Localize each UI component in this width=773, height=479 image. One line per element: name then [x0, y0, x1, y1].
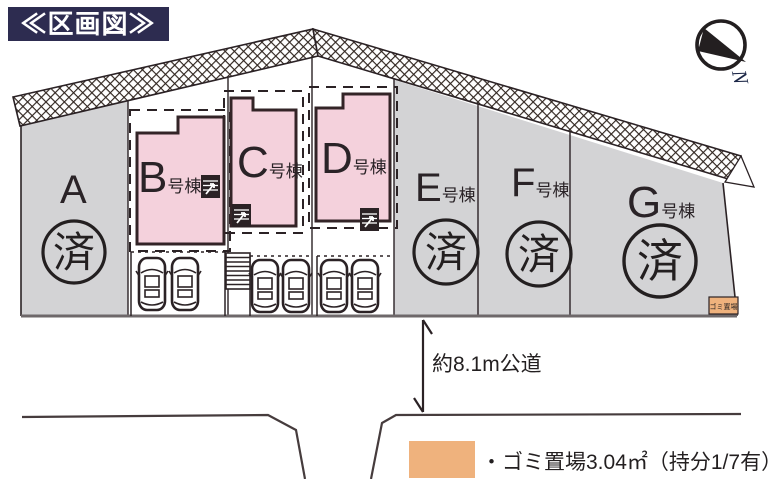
north-compass-icon: N	[697, 21, 754, 87]
svg-text:済: 済	[425, 229, 467, 276]
svg-text:済: 済	[637, 235, 683, 287]
north-label: N	[727, 67, 754, 88]
title-plate: ≪区画図≫	[8, 7, 169, 41]
car-icon	[136, 258, 168, 310]
lot-label-a: A	[60, 168, 87, 212]
stairs-icon-c	[232, 204, 251, 227]
road-edge-left	[22, 415, 305, 479]
steps-block	[226, 253, 250, 289]
car-icon	[349, 260, 381, 312]
car-icon	[169, 258, 201, 310]
road-width-arrow	[414, 320, 432, 412]
site-plan-canvas: A B号棟 C号棟 D号棟 E号棟 F号棟 G号棟 済 済 済 済 ゴミ置場	[0, 0, 773, 479]
legend-garbage-swatch	[409, 441, 475, 478]
page-title: ≪区画図≫	[20, 9, 155, 39]
svg-text:済: 済	[518, 231, 560, 278]
road-width-label: 約8.1m公道	[432, 353, 542, 376]
garbage-station-box: ゴミ置場	[709, 297, 738, 314]
legend-garbage-text: ・ゴミ置場3.04㎡（持分1/7有）	[481, 450, 773, 474]
stairs-icon-d	[360, 208, 379, 231]
car-icon	[280, 260, 312, 312]
svg-text:ゴミ置場: ゴミ置場	[710, 302, 738, 311]
car-icon	[249, 260, 281, 312]
stairs-icon-b	[201, 175, 220, 198]
svg-text:済: 済	[53, 229, 95, 276]
car-icon	[318, 260, 350, 312]
plot-map: A B号棟 C号棟 D号棟 E号棟 F号棟 G号棟 済 済 済 済 ゴミ置場	[0, 0, 773, 479]
